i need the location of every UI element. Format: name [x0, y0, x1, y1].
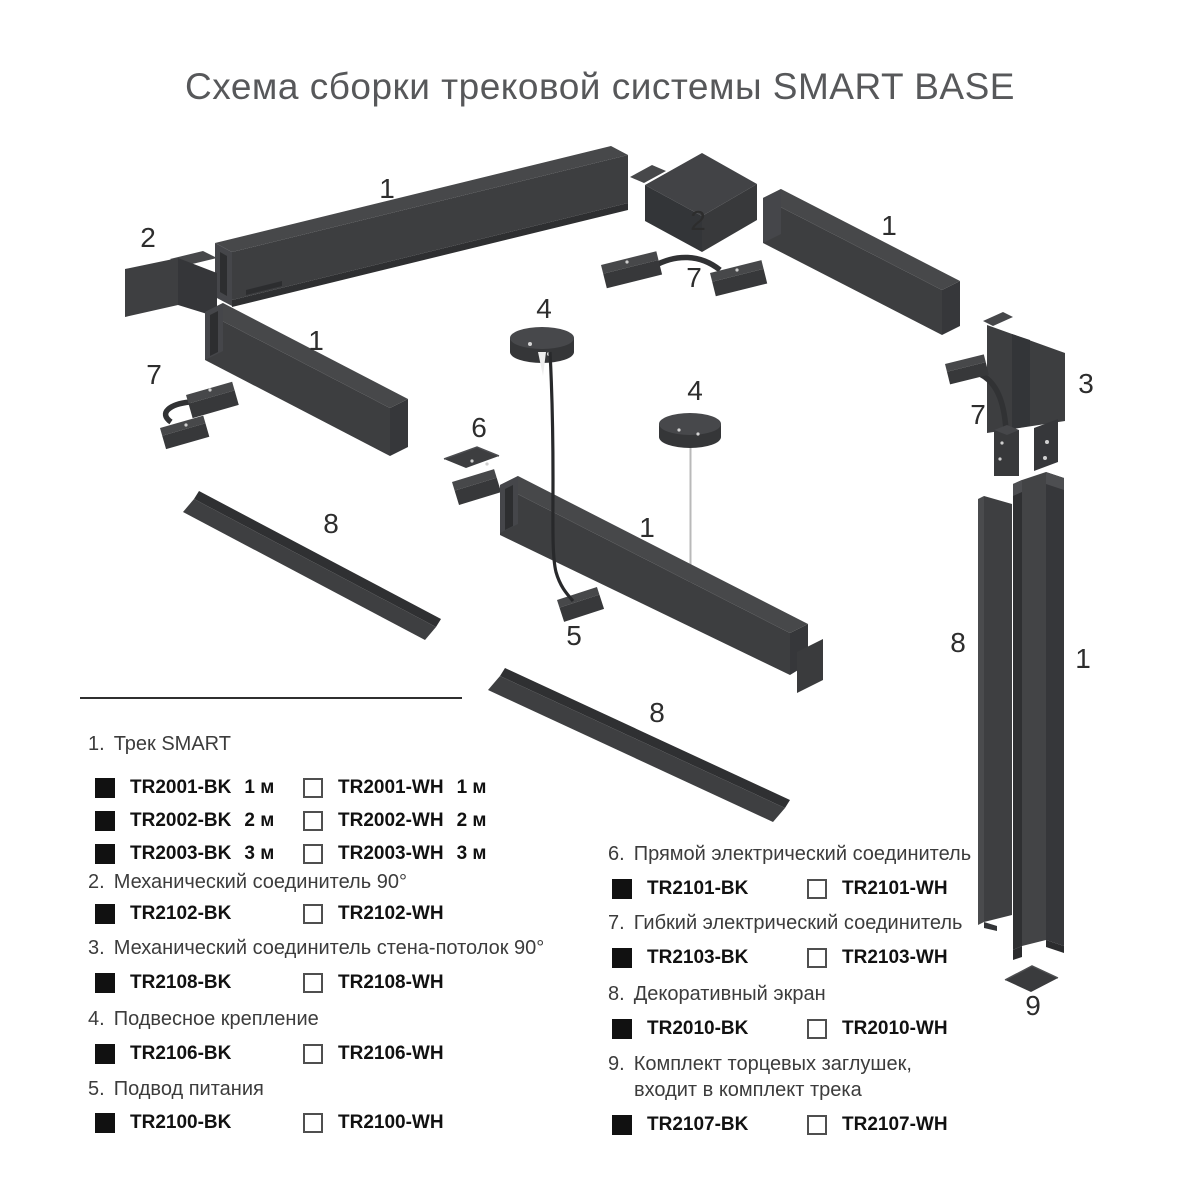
- callout-track-right: 1: [1075, 643, 1091, 674]
- straight-connector: [444, 447, 501, 505]
- swatch-white: [303, 1044, 323, 1064]
- callout-straight-connector: 6: [471, 412, 487, 443]
- swatch-black: [612, 1019, 632, 1039]
- legend-item-5-heading: 5.Подвод питания: [88, 1078, 264, 1101]
- callout-screen-right: 8: [950, 627, 966, 658]
- track-mid-left: [205, 303, 408, 456]
- legend-item-1-heading: 1.Трек SMART: [88, 733, 231, 756]
- callout-flex-right: 7: [970, 399, 986, 430]
- swatch-black: [95, 1044, 115, 1064]
- callout-flex-top: 7: [686, 262, 702, 293]
- screen-right: [978, 496, 1012, 931]
- callout-track-top-left: 1: [379, 173, 395, 204]
- corner-connector-top: [630, 153, 757, 252]
- legend-item-8-heading: 8.Декоративный экран: [608, 983, 826, 1006]
- screen-left: [183, 491, 441, 640]
- assembly-scheme-page: Схема сборки трековой системы SMART BASE: [0, 0, 1200, 1200]
- legend-row: TR2106-BK TR2106-WH: [95, 1043, 444, 1064]
- swatch-black: [612, 879, 632, 899]
- flex-connector-top: [601, 251, 767, 296]
- legend-row: TR2101-BK TR2101-WH: [612, 878, 948, 899]
- callout-corner-left: 2: [140, 222, 156, 253]
- legend-item-9-heading: 9.Комплект торцевых заглушек,: [608, 1053, 912, 1076]
- track-top-right: [763, 189, 960, 335]
- screen-bottom: [488, 668, 790, 822]
- legend-item-3-heading: 3.Механический соединитель стена-потолок…: [88, 937, 544, 960]
- legend-row: TR2102-BK TR2102-WH: [95, 903, 444, 924]
- swatch-white: [303, 904, 323, 924]
- swatch-white: [807, 879, 827, 899]
- callout-flex-left: 7: [146, 359, 162, 390]
- swatch-white: [807, 948, 827, 968]
- swatch-black: [95, 778, 115, 798]
- swatch-white: [303, 811, 323, 831]
- legend-item-2-heading: 2.Механический соединитель 90°: [88, 871, 407, 894]
- track-top-left: [215, 146, 628, 307]
- legend-row: TR2001-BK 1 м TR2001-WH 1 м: [95, 777, 486, 798]
- legend-item-9-heading-line2: входит в комплект трека: [634, 1079, 862, 1102]
- track-center: [500, 476, 823, 693]
- swatch-white: [807, 1115, 827, 1135]
- callout-corner-top: 2: [690, 205, 706, 236]
- legend-row: TR2103-BK TR2103-WH: [612, 947, 948, 968]
- legend-item-6-heading: 6.Прямой электрический соединитель: [608, 843, 971, 866]
- swatch-black: [612, 1115, 632, 1135]
- legend-row: TR2002-BK 2 м TR2002-WH 2 м: [95, 810, 486, 831]
- callout-pendant-2: 4: [687, 375, 703, 406]
- legend-row: TR2100-BK TR2100-WH: [95, 1112, 444, 1133]
- swatch-black: [95, 844, 115, 864]
- swatch-white: [303, 844, 323, 864]
- legend-item-7-heading: 7.Гибкий электрический соединитель: [608, 912, 962, 935]
- callout-track-top-right: 1: [881, 210, 897, 241]
- callout-wall-ceiling: 3: [1078, 368, 1094, 399]
- callout-track-center: 1: [639, 512, 655, 543]
- flex-connector-left: [160, 382, 239, 449]
- legend-item-4-heading: 4.Подвесное крепление: [88, 1008, 319, 1031]
- swatch-white: [807, 1019, 827, 1039]
- callout-track-mid-left: 1: [308, 325, 324, 356]
- legend-row: TR2107-BK TR2107-WH: [612, 1114, 948, 1135]
- swatch-white: [303, 973, 323, 993]
- callout-screen-left: 8: [323, 508, 339, 539]
- swatch-white: [303, 1113, 323, 1133]
- swatch-black: [95, 1113, 115, 1133]
- legend-row: TR2108-BK TR2108-WH: [95, 972, 444, 993]
- callout-pendant-1: 4: [536, 293, 552, 324]
- swatch-black: [612, 948, 632, 968]
- callout-power-feed: 5: [566, 620, 582, 651]
- legend-row: TR2010-BK TR2010-WH: [612, 1018, 948, 1039]
- swatch-black: [95, 904, 115, 924]
- swatch-black: [95, 973, 115, 993]
- swatch-black: [95, 811, 115, 831]
- end-cap: [1005, 966, 1058, 992]
- legend-divider: [80, 697, 462, 699]
- swatch-white: [303, 778, 323, 798]
- callout-screen-bottom: 8: [649, 697, 665, 728]
- corner-connector-left: [125, 251, 217, 317]
- callout-end-cap: 9: [1025, 990, 1041, 1021]
- track-right: [1013, 472, 1064, 960]
- legend-row: TR2003-BK 3 м TR2003-WH 3 м: [95, 843, 486, 864]
